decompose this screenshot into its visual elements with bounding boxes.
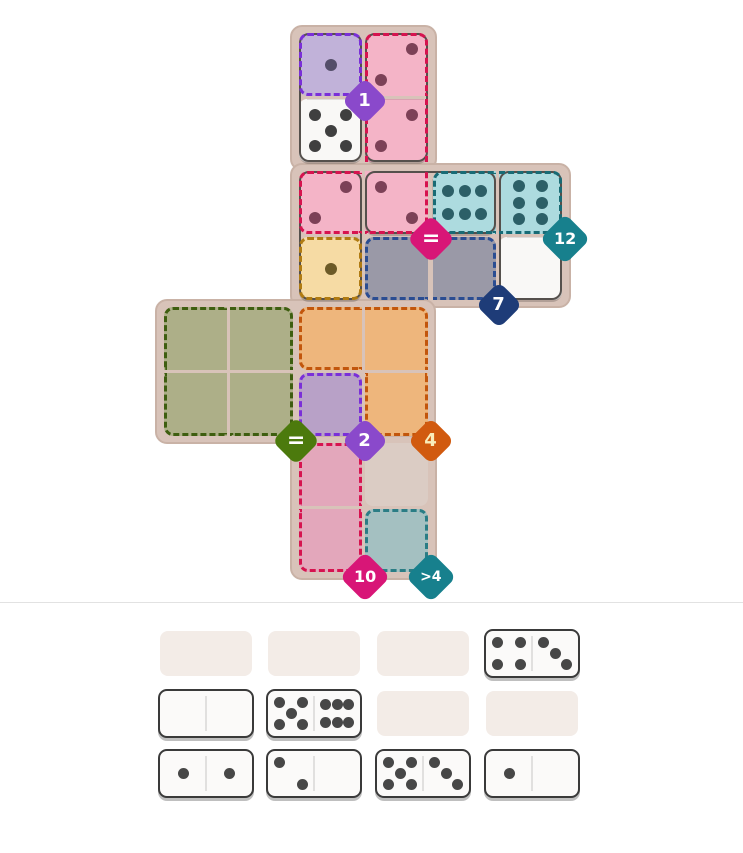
tray-divider-line <box>0 602 743 603</box>
region-green-equal-outline <box>230 307 293 370</box>
badge-label: 4 <box>425 432 438 450</box>
pip <box>325 125 337 137</box>
domino-divider <box>205 696 207 731</box>
pip <box>332 699 343 710</box>
pip <box>309 140 321 152</box>
domino-divider <box>205 756 207 791</box>
pip <box>274 697 285 708</box>
region-purple-2-outline <box>299 373 362 436</box>
region-teal-12-outline <box>433 171 496 234</box>
badge-label: 7 <box>493 296 506 314</box>
pip <box>332 717 343 728</box>
pip <box>550 648 561 659</box>
pip <box>406 779 417 790</box>
pip <box>320 717 331 728</box>
pip <box>343 699 354 710</box>
pip <box>178 768 189 779</box>
pip <box>274 719 285 730</box>
badge-label: >4 <box>420 570 441 584</box>
tray-domino-1-0[interactable] <box>484 749 580 798</box>
region-orange-4-outline <box>299 307 362 370</box>
tray-slot <box>377 691 469 736</box>
tray-domino-1-1[interactable] <box>158 749 254 798</box>
pip <box>224 768 235 779</box>
domino-divider <box>531 756 533 791</box>
pip <box>340 140 352 152</box>
badge-label: 1 <box>359 92 372 110</box>
pip <box>297 719 308 730</box>
pip <box>441 768 452 779</box>
pip <box>406 757 417 768</box>
badge-label: = <box>287 430 305 452</box>
region-pink-equal-outline <box>365 171 428 234</box>
pip <box>395 768 406 779</box>
tray-domino-0-0[interactable] <box>158 689 254 738</box>
region-yellow-plain-outline <box>299 237 362 300</box>
domino-divider <box>531 636 533 671</box>
pip <box>297 779 308 790</box>
domino-divider <box>313 756 315 791</box>
pip <box>452 779 463 790</box>
tray-domino-5-6[interactable] <box>266 689 362 738</box>
pip <box>515 637 526 648</box>
pip <box>504 768 515 779</box>
badge-label: 2 <box>359 432 372 450</box>
tray-slot <box>377 631 469 676</box>
region-purple-1-outline <box>299 33 362 96</box>
pip <box>286 708 297 719</box>
pips-game: 1=127=4210>4 <box>0 0 743 853</box>
tray-domino-5-3[interactable] <box>375 749 471 798</box>
pip <box>274 757 285 768</box>
badge-label: 10 <box>354 569 376 585</box>
domino-divider <box>313 696 315 731</box>
pip <box>561 659 572 670</box>
pip <box>538 637 549 648</box>
tray-slot <box>486 691 578 736</box>
tray-domino-2-0[interactable] <box>266 749 362 798</box>
region-green-equal-outline <box>164 307 227 370</box>
region-orange-4-outline <box>365 307 428 370</box>
pip <box>320 699 331 710</box>
pip <box>429 757 440 768</box>
pip <box>297 697 308 708</box>
pip <box>492 659 503 670</box>
domino-divider <box>422 756 424 791</box>
badge-label: = <box>422 228 440 250</box>
pip <box>383 757 394 768</box>
tray-slot <box>268 631 360 676</box>
pip <box>515 659 526 670</box>
pip <box>340 109 352 121</box>
pip <box>383 779 394 790</box>
tray-slot <box>160 631 252 676</box>
region-green-equal-outline <box>230 373 293 436</box>
pip <box>343 717 354 728</box>
pip <box>492 637 503 648</box>
region-pink-equal-outline <box>299 171 362 234</box>
region-green-equal-outline <box>164 373 227 436</box>
badge-label: 12 <box>554 231 576 247</box>
tray-domino-4-3[interactable] <box>484 629 580 678</box>
